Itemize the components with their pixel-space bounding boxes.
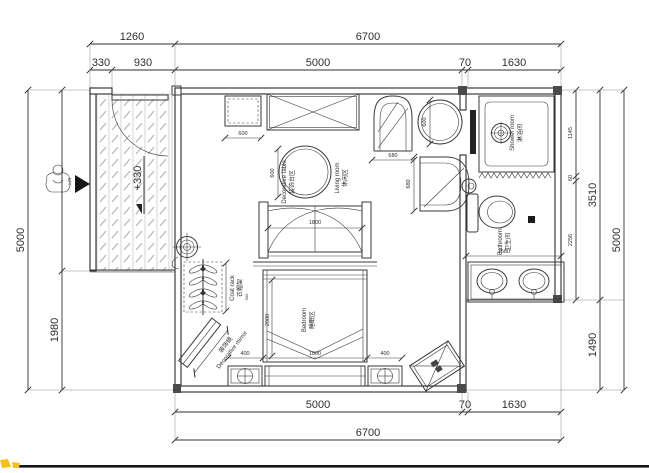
shower-room: Shower room 淋浴间 bbox=[470, 96, 554, 178]
dim-label-6700-bottom: 6700 bbox=[356, 427, 380, 439]
sink-right bbox=[519, 269, 549, 299]
coat-rack-label-zh: 衣帽架 bbox=[236, 279, 244, 297]
living-room: 600 600 Decorative table 装饰台区 Living roo… bbox=[222, 94, 469, 214]
entry-porch: +330 bbox=[90, 88, 175, 272]
living-zone-label-zh: 休闲区 bbox=[341, 169, 349, 187]
vanity-counter bbox=[468, 262, 564, 302]
bed-width-dims: 400 1800 400 bbox=[225, 351, 405, 361]
floor-plan-drawing: 1260 6700 330 930 5000 70 1630 5000 70 1… bbox=[0, 0, 649, 473]
bathroom-dot-marker bbox=[528, 216, 535, 223]
watermark-fragment bbox=[0, 459, 11, 468]
bathroom-width-dim: 1580 bbox=[463, 249, 564, 259]
level-label: +330 bbox=[132, 166, 144, 191]
dim-label-5000-right: 5000 bbox=[611, 228, 623, 252]
dim-label-1630-bottom: 1630 bbox=[502, 399, 526, 411]
dim-label-1145: 1145 bbox=[568, 127, 574, 139]
side-cabinet: 600 bbox=[222, 96, 264, 141]
armchair-left: 680 bbox=[369, 96, 417, 163]
bedroom: 2000 Bedroom 睡眠区 400 180 bbox=[225, 270, 405, 386]
watermark-fragment-2 bbox=[12, 462, 20, 468]
dim-label-930: 930 bbox=[134, 57, 152, 69]
sink-left bbox=[477, 269, 507, 299]
nightstand-left bbox=[228, 366, 262, 386]
bay-window: 1800 bbox=[253, 202, 377, 266]
dim-label-1630-top: 1630 bbox=[502, 57, 526, 69]
bed-foot-bench bbox=[265, 366, 365, 386]
entrance-arrow-icon bbox=[75, 175, 90, 193]
coat-rack-dim-label: 900 bbox=[244, 293, 249, 300]
decorative-table-label-zh: 装饰台区 bbox=[288, 170, 296, 194]
dim-top-row1: 1260 6700 bbox=[87, 31, 564, 47]
decorative-table-label-en: Decorative table bbox=[282, 160, 288, 204]
shower-label-en: Shower room bbox=[510, 115, 516, 151]
bedroom-zone-label-zh: 睡眠区 bbox=[308, 311, 316, 329]
dim-label-70-top: 70 bbox=[459, 57, 471, 69]
armchair-left-dim-label: 680 bbox=[388, 153, 397, 159]
nightstand-right bbox=[368, 366, 402, 386]
dim-label-3510: 3510 bbox=[587, 183, 599, 207]
entrance-figure: 入口 bbox=[46, 165, 90, 193]
dim-label-5000-top: 5000 bbox=[306, 57, 330, 69]
dim-bottom-row1: 5000 70 1630 bbox=[172, 399, 564, 415]
entrance-label: 入口 bbox=[67, 178, 72, 186]
dim-label-2256: 2256 bbox=[568, 234, 574, 246]
side-table-crossed bbox=[410, 341, 465, 391]
bed-length-dim-label: 2000 bbox=[265, 314, 271, 326]
shower-door-leaf bbox=[470, 110, 476, 154]
dim-label-1980: 1980 bbox=[49, 318, 61, 342]
round-table: 600 bbox=[270, 146, 331, 200]
dim-label-70-bottom: 70 bbox=[459, 399, 471, 411]
bathroom-width-dim-label: 1580 bbox=[498, 249, 510, 255]
shower-curtain bbox=[479, 173, 551, 178]
bed-width-dim-label: 1800 bbox=[309, 351, 321, 357]
footer-bar bbox=[17, 465, 649, 468]
dim-label-60: 60 bbox=[568, 175, 574, 181]
dim-label-5000-bottom: 5000 bbox=[306, 399, 330, 411]
window-dim-label: 1800 bbox=[309, 220, 321, 226]
bedroom-zone-label-en: Bedroom bbox=[302, 308, 308, 332]
floor-plan-page: 1260 6700 330 930 5000 70 1630 5000 70 1… bbox=[0, 0, 649, 473]
decorative-mirror: 装饰镜 Decorative mirror bbox=[177, 316, 249, 378]
dim-label-1490: 1490 bbox=[587, 333, 599, 357]
bathroom: Shower room 淋浴间 Bathroom 卫生间 1580 bbox=[462, 96, 564, 302]
dim-right-mid: 3510 1490 bbox=[587, 87, 603, 393]
living-zone-label-en: Living room bbox=[335, 162, 341, 193]
shower-label-zh: 淋浴间 bbox=[516, 124, 524, 142]
console-table bbox=[267, 94, 359, 130]
dim-label-6700-top: 6700 bbox=[356, 31, 380, 43]
nightstand-left-dim-label: 400 bbox=[240, 351, 249, 357]
dim-label-1260: 1260 bbox=[120, 31, 144, 43]
cabinet-dim-label: 600 bbox=[238, 131, 247, 137]
dim-label-5000-left: 5000 bbox=[15, 228, 27, 252]
floor-drain-icon bbox=[490, 122, 512, 144]
armchair-right-dim-label: 680 bbox=[406, 179, 412, 188]
dim-right-chain: 1145 60 2256 bbox=[568, 87, 579, 303]
nightstand-right-dim-label: 400 bbox=[380, 351, 389, 357]
coat-rack-label-en: Coat rack bbox=[230, 274, 236, 301]
round-chair-dim-label: 600 bbox=[422, 117, 428, 126]
dim-label-330: 330 bbox=[92, 57, 110, 69]
round-chair: 600 bbox=[418, 97, 462, 147]
coat-rack: Coat rack 衣帽架 900 bbox=[184, 259, 249, 315]
toilet bbox=[462, 179, 515, 232]
bed: 2000 Bedroom 睡眠区 bbox=[263, 270, 367, 362]
person-icon bbox=[53, 165, 63, 175]
table-dim-label: 600 bbox=[270, 168, 276, 177]
